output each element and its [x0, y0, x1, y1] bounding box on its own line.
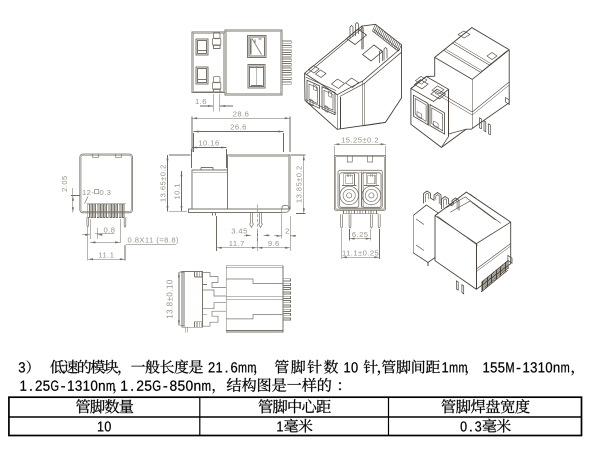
svg-text:12-: 12-: [82, 188, 94, 197]
svg-text:6.25: 6.25: [352, 230, 369, 239]
svg-text:3.45: 3.45: [231, 227, 248, 236]
svg-text:13.8±0.10: 13.8±0.10: [165, 279, 174, 319]
svg-text:28.6: 28.6: [233, 110, 250, 119]
svg-text:11.1±0.25: 11.1±0.25: [342, 248, 379, 257]
svg-text:13.85±0.2: 13.85±0.2: [295, 165, 304, 203]
svg-text:11.1: 11.1: [98, 251, 114, 260]
svg-text:0.3: 0.3: [100, 188, 112, 197]
svg-text:0.8X11 (=8.8): 0.8X11 (=8.8): [128, 235, 180, 244]
svg-text:15.25±0.2: 15.25±0.2: [341, 135, 379, 144]
svg-text:10.1: 10.1: [172, 183, 181, 200]
svg-text:1.6: 1.6: [195, 97, 207, 106]
svg-text:13.65±0.2: 13.65±0.2: [158, 164, 167, 202]
svg-text:26.6: 26.6: [230, 123, 247, 132]
svg-text:11.7: 11.7: [229, 239, 245, 248]
svg-text:2: 2: [285, 226, 290, 235]
svg-text:2.05: 2.05: [60, 175, 69, 192]
svg-text:10.16: 10.16: [198, 139, 219, 148]
svg-text:0.8: 0.8: [104, 226, 116, 235]
svg-text:9.6: 9.6: [268, 239, 280, 248]
